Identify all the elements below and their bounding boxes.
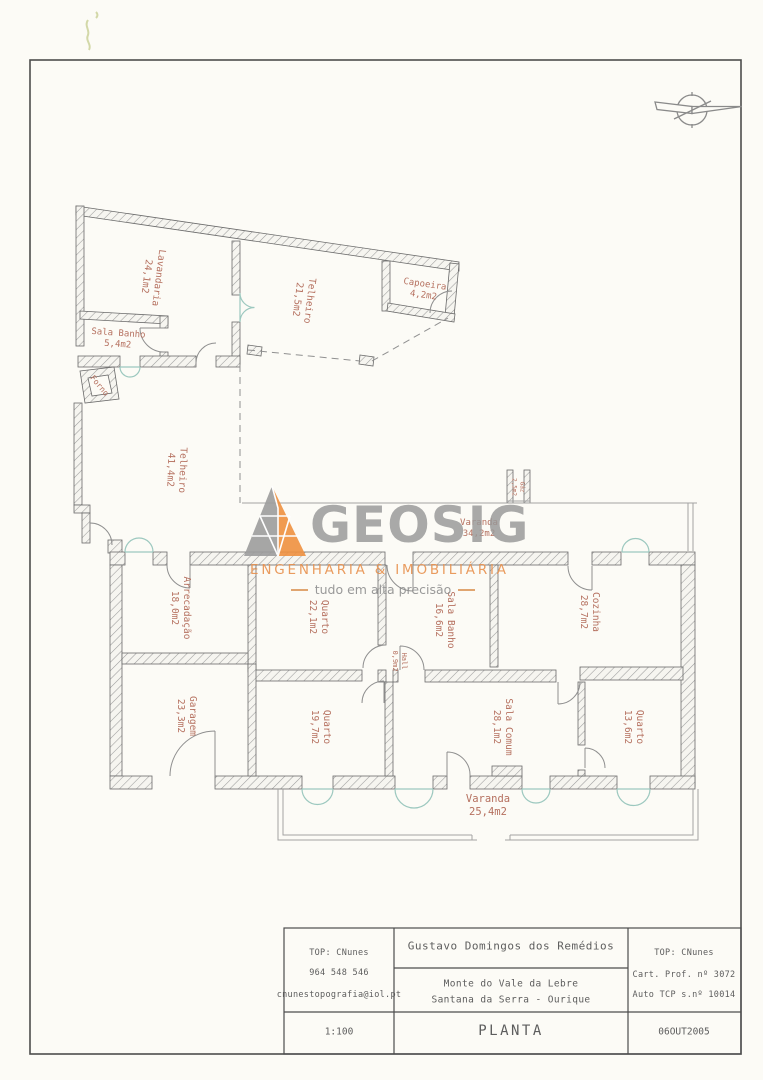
room-label-quarto: Quarto13,6m2 <box>621 710 645 744</box>
room-label-telheiro: Telheiro21,5m2 <box>288 276 317 324</box>
tb-left-author: TOP: CNunes <box>309 948 369 958</box>
logo-slogan-row: tudo em alta precisão <box>268 582 498 597</box>
room-label-garagem: Garagem23,3m2 <box>174 696 198 736</box>
tb-client-name: Gustavo Domingos dos Remédios <box>408 940 615 953</box>
tb-location-2: Santana da Serra - Ourique <box>431 995 590 1006</box>
room-label-sala-comum: Sala Comum28,1m2 <box>490 698 514 755</box>
room-label-arrecadacao: Arrecadação18,0m2 <box>168 577 192 640</box>
room-label-quarto: Quarto19,7m2 <box>308 710 332 744</box>
slogan-rule-right <box>458 589 475 591</box>
room-label-sala-banho: Sala Banho5,4m2 <box>90 327 146 353</box>
room-label-hall: Hall0,9m2 <box>390 650 408 671</box>
geosig-pyramid-icon <box>238 478 316 562</box>
room-label-lavandaria: Lavandaria24,1m2 <box>137 247 168 307</box>
room-label-varanda: Varanda25,4m2 <box>466 793 510 819</box>
tb-right-author: TOP: CNunes <box>654 948 714 958</box>
tb-drawing-title: PLANTA <box>478 1023 544 1039</box>
room-label-telheiro: Telheiro41,4m2 <box>163 447 188 494</box>
tb-left-email: cnunestopografia@iol.pt <box>277 990 402 1000</box>
tb-scale: 1:100 <box>325 1027 354 1038</box>
slogan-rule-left <box>291 589 308 591</box>
room-label-quarto: Quarto22,1m2 <box>306 600 330 634</box>
tb-date: 06OUT2005 <box>658 1027 709 1038</box>
tb-location-1: Monte do Vale da Lebre <box>444 979 579 990</box>
logo-slogan: tudo em alta precisão <box>315 582 452 597</box>
room-label-capoeira: Capoeira4,2m2 <box>401 277 447 305</box>
tb-right-cart: Cart. Prof. nº 3072 <box>633 970 736 980</box>
tb-left-phone: 964 548 546 <box>309 968 369 978</box>
logo-wordmark: GEOSIG <box>310 496 529 554</box>
tb-right-auto: Auto TCP s.nº 10014 <box>633 990 736 1000</box>
scanned-floor-plan-sheet: Lavandaria24,1m2Telheiro21,5m2Capoeira4,… <box>0 0 763 1080</box>
room-label-cozinha: Cozinha28,7m2 <box>577 592 601 632</box>
logo-tagline: ENGENHARIA & IMOBILIÁRIA <box>250 562 509 578</box>
room-label-forno: Forno <box>87 374 110 399</box>
geosig-watermark: GEOSIG ENGENHARIA & IMOBILIÁRIA tudo em … <box>238 478 558 603</box>
